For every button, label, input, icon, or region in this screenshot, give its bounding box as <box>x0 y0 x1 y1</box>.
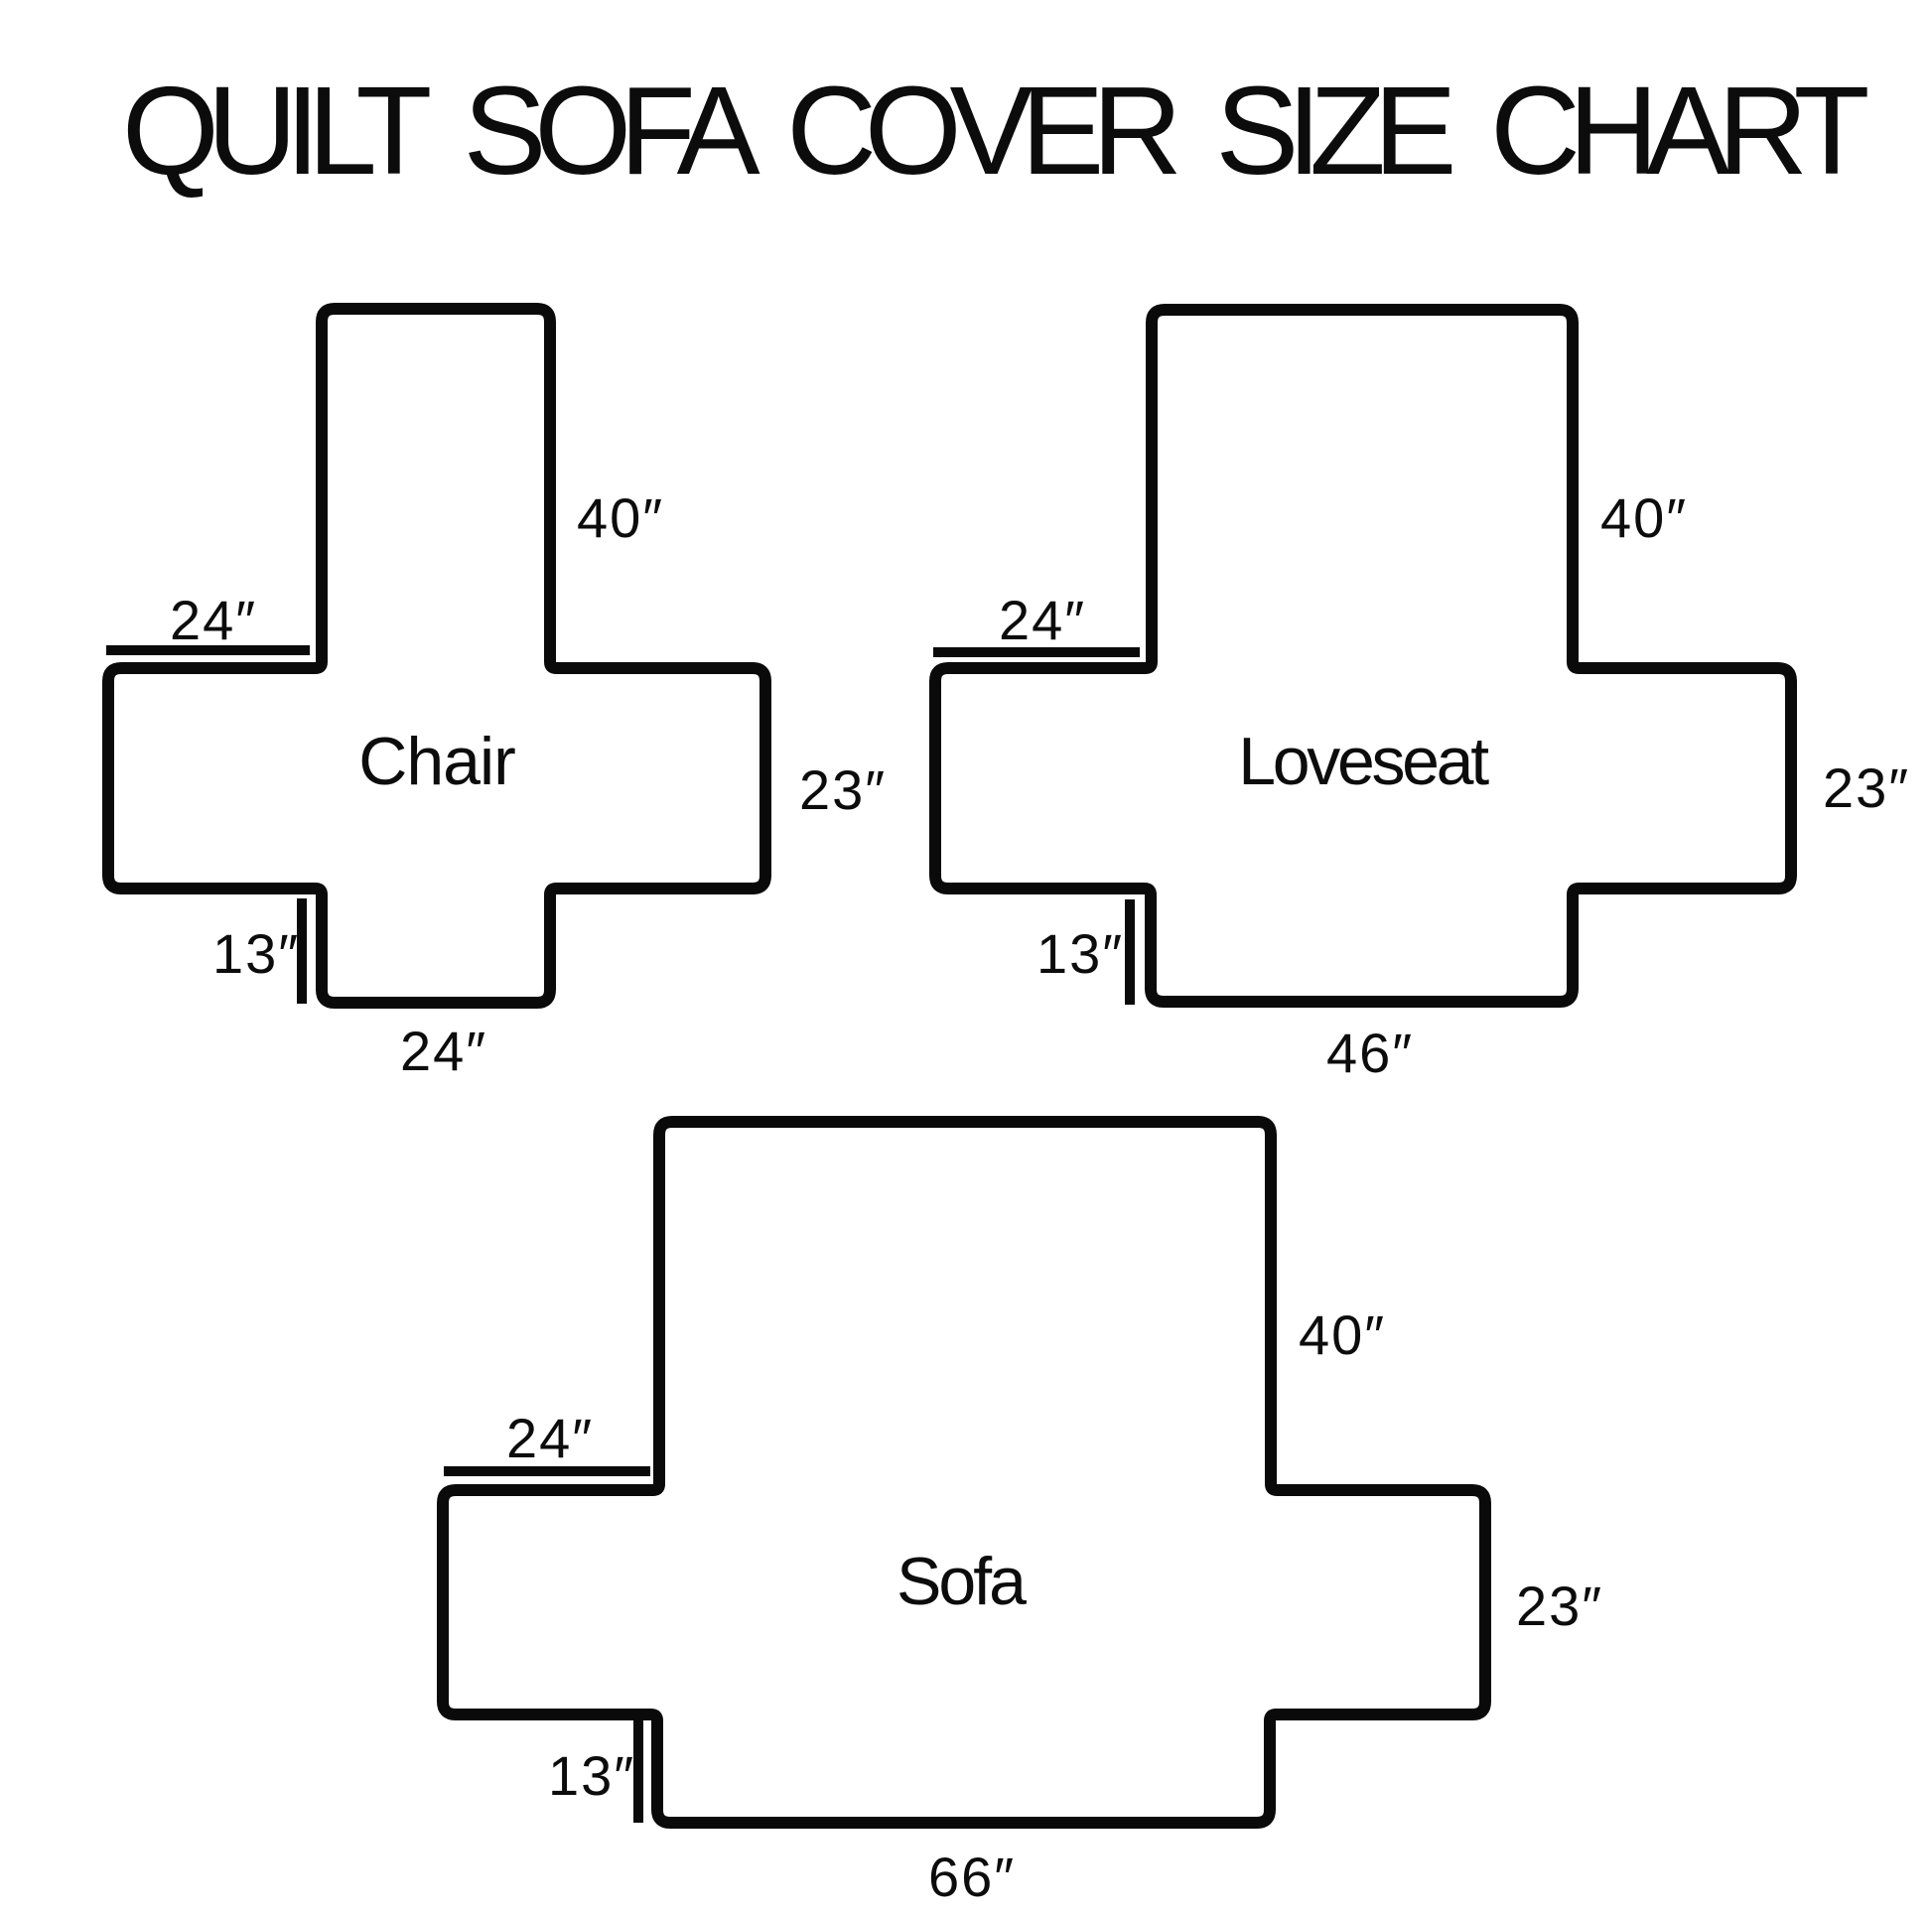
svg-text:23″: 23″ <box>1823 756 1910 819</box>
svg-text:23″: 23″ <box>799 758 887 821</box>
svg-text:40″: 40″ <box>1299 1303 1386 1366</box>
svg-text:24″: 24″ <box>170 589 257 651</box>
svg-text:QUILT SOFA COVER SIZE CHART: QUILT SOFA COVER SIZE CHART <box>122 61 1868 201</box>
svg-text:Chair: Chair <box>358 724 515 799</box>
svg-text:13″: 13″ <box>548 1744 635 1807</box>
svg-text:13″: 13″ <box>1036 922 1124 985</box>
svg-text:40″: 40″ <box>1600 486 1688 549</box>
svg-text:Loveseat: Loveseat <box>1238 724 1489 799</box>
svg-text:24″: 24″ <box>999 589 1086 651</box>
svg-text:24″: 24″ <box>506 1407 594 1469</box>
svg-text:13″: 13″ <box>212 922 300 985</box>
svg-text:23″: 23″ <box>1516 1575 1603 1637</box>
svg-text:40″: 40″ <box>577 486 664 549</box>
svg-text:66″: 66″ <box>928 1846 1016 1908</box>
svg-text:24″: 24″ <box>400 1020 487 1082</box>
svg-text:46″: 46″ <box>1326 1022 1414 1084</box>
svg-text:Sofa: Sofa <box>897 1544 1027 1619</box>
